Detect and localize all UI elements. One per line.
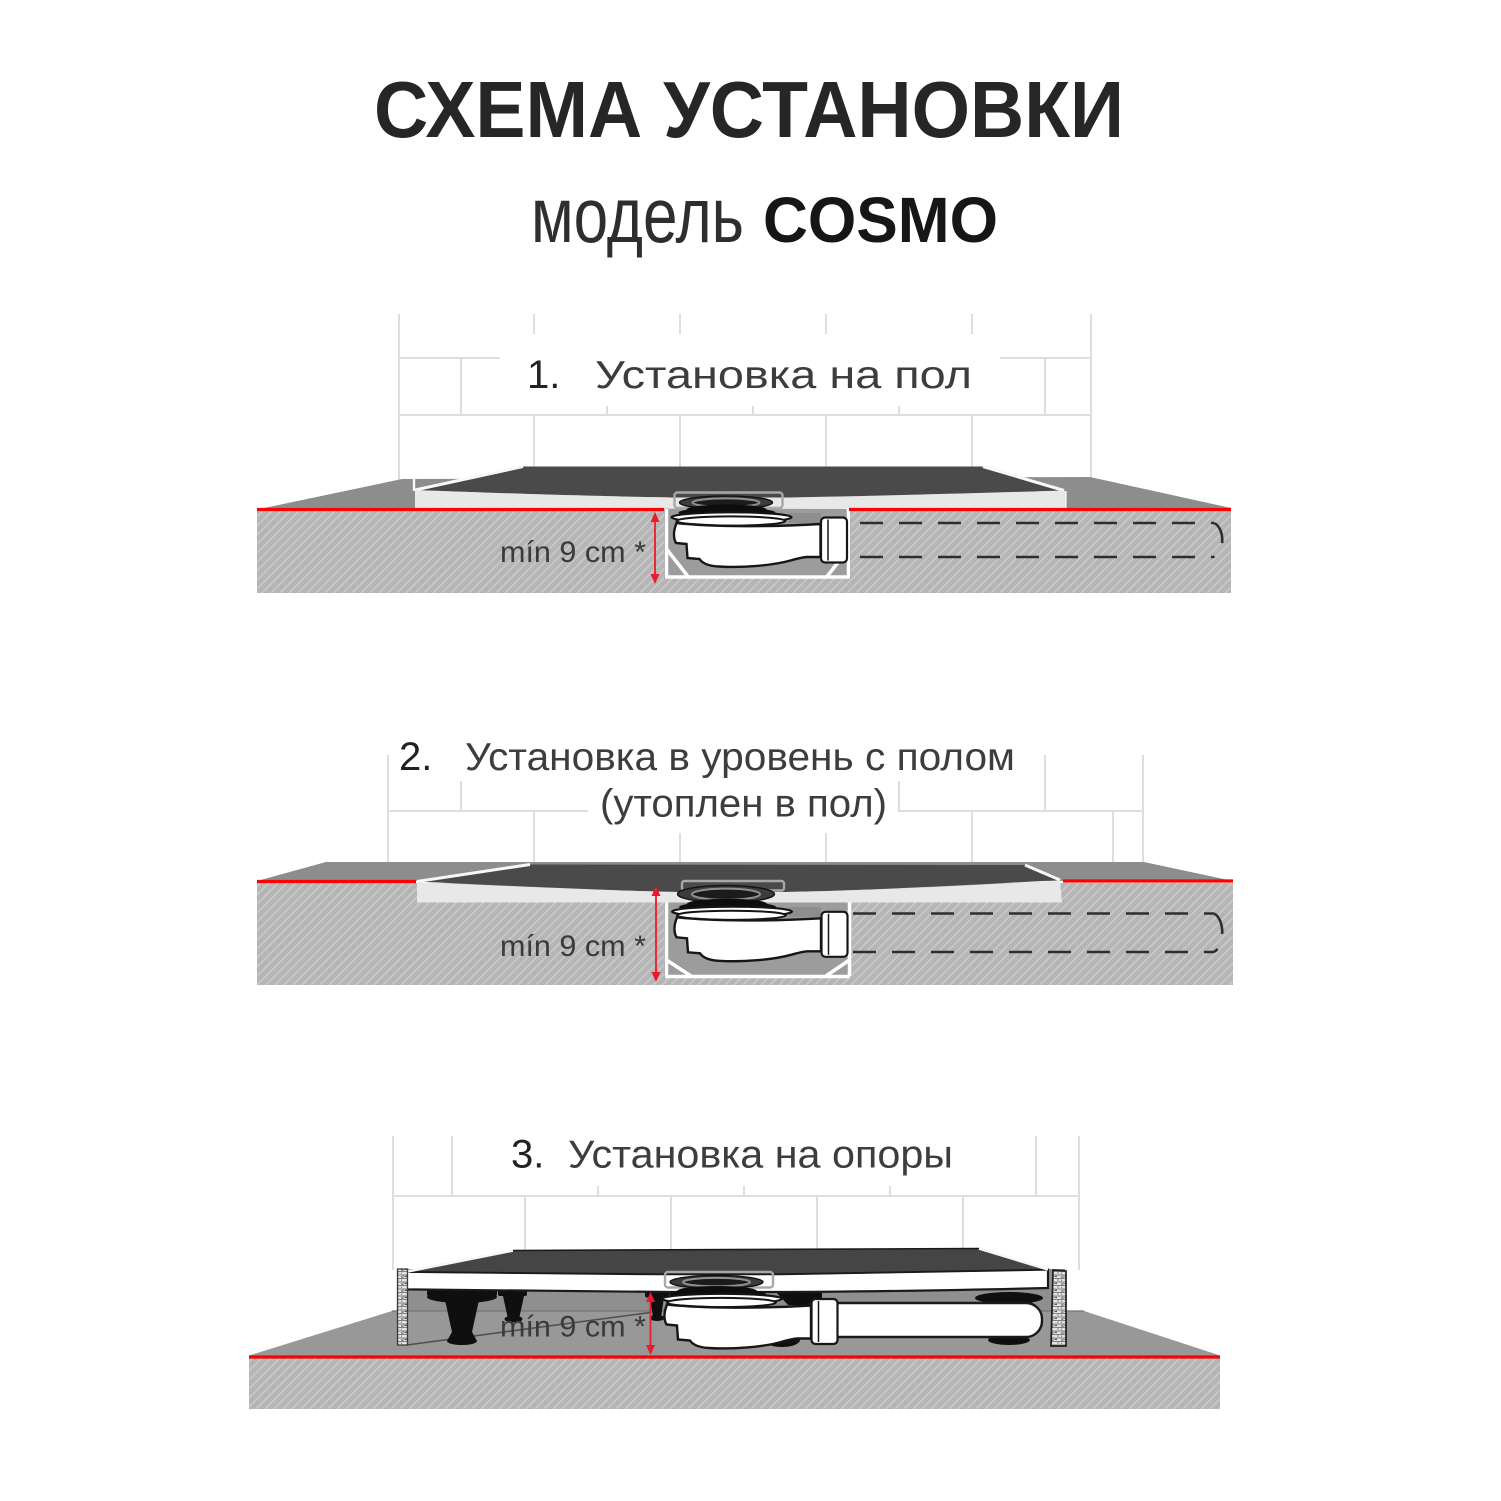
svg-text:mín 9 cm *: mín 9 cm * — [500, 1311, 646, 1344]
svg-text:СХЕМА УСТАНОВКИ: СХЕМА УСТАНОВКИ — [374, 65, 1124, 154]
svg-text:3.: 3. — [511, 1133, 544, 1177]
svg-text:COSMO: COSMO — [763, 184, 998, 256]
svg-text:Установка в уровень с полом: Установка в уровень с полом — [465, 736, 1015, 779]
svg-text:mín 9 cm *: mín 9 cm * — [500, 930, 646, 963]
svg-text:2.: 2. — [399, 735, 432, 779]
svg-text:mín 9 cm *: mín 9 cm * — [500, 536, 646, 569]
svg-text:Установка на опоры: Установка на опоры — [568, 1134, 953, 1177]
svg-text:Установка на пол: Установка на пол — [595, 354, 972, 397]
svg-text:1.: 1. — [527, 353, 560, 397]
svg-text:модель: модель — [531, 171, 744, 259]
svg-text:(утоплен в пол): (утоплен в пол) — [600, 783, 887, 826]
